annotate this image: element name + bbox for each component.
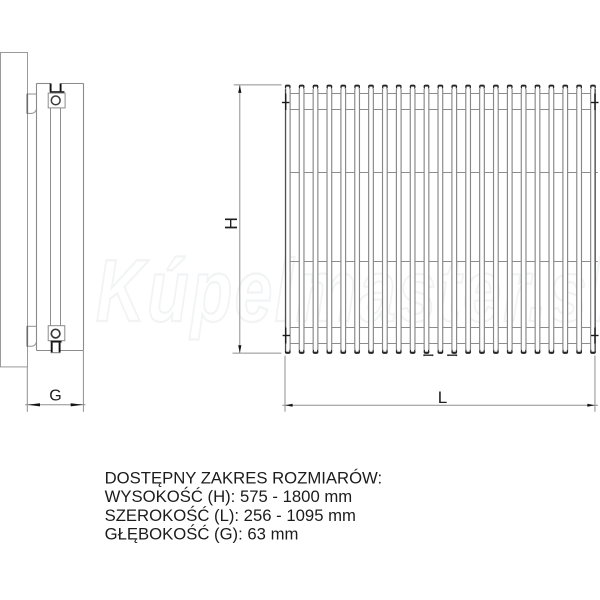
svg-text:WYSOKOŚĆ (H): 575 - 1800 mm: WYSOKOŚĆ (H): 575 - 1800 mm [105,487,353,506]
svg-text:GŁĘBOKOŚĆ (G): 63 mm: GŁĘBOKOŚĆ (G): 63 mm [105,525,299,544]
svg-text:L: L [438,388,447,407]
svg-text:SZEROKOŚĆ (L): 256 - 1095 mm: SZEROKOŚĆ (L): 256 - 1095 mm [105,506,356,525]
svg-text:H: H [221,217,241,230]
svg-text:G: G [49,388,61,405]
svg-text:DOSTĘPNY ZAKRES ROZMIARÓW:: DOSTĘPNY ZAKRES ROZMIARÓW: [105,468,383,487]
